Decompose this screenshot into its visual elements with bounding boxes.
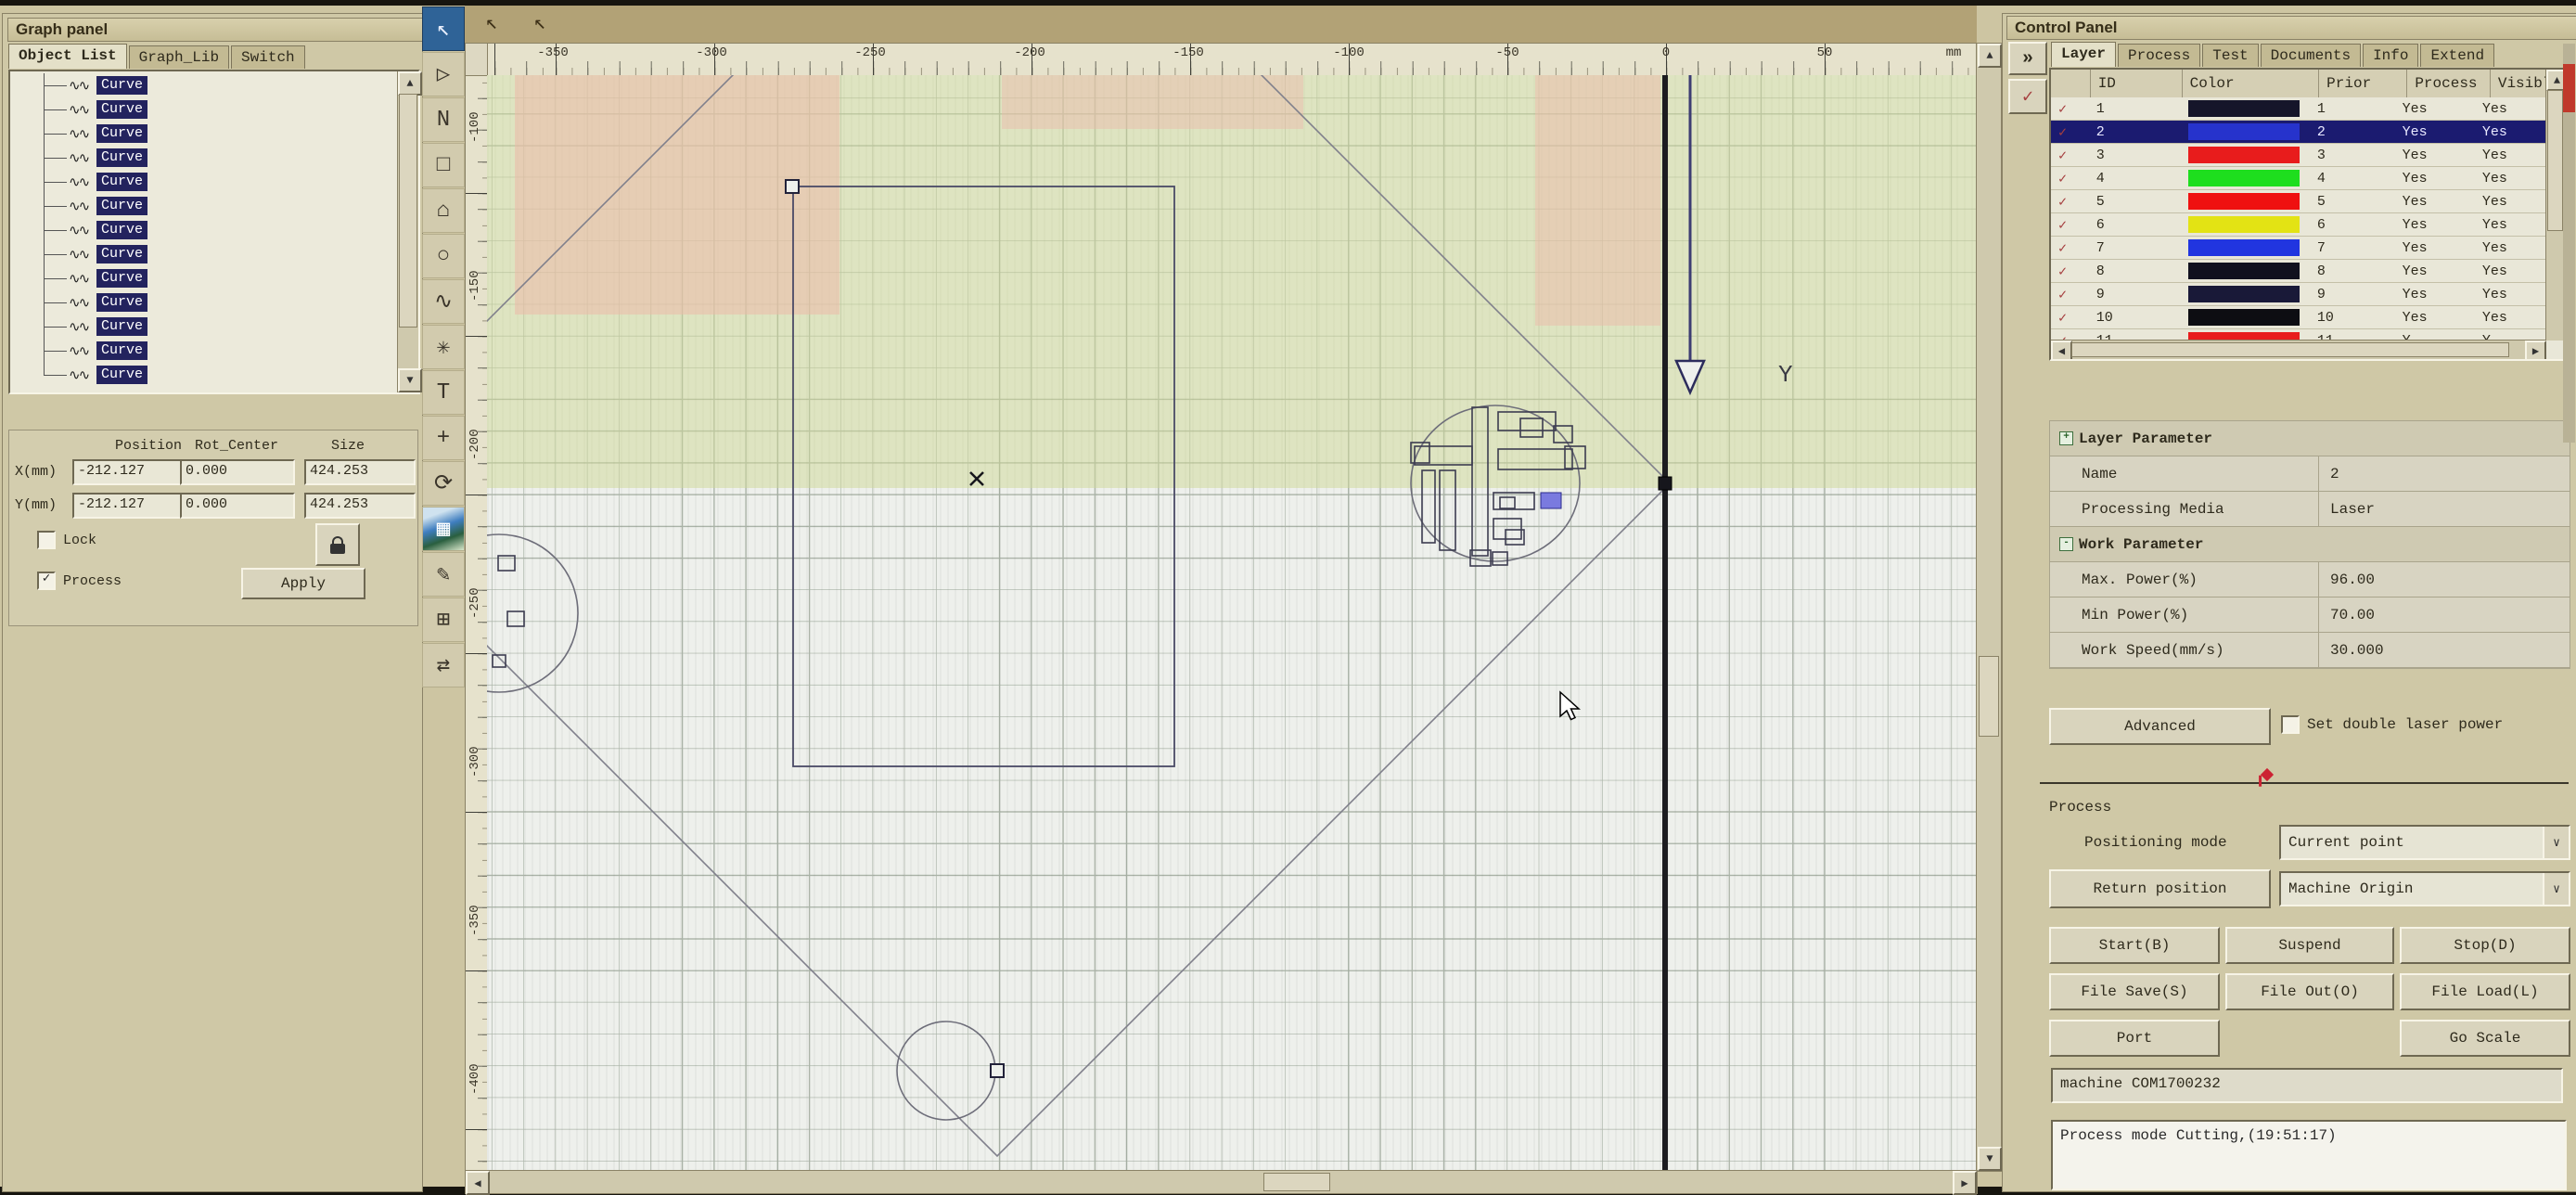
layer-process[interactable]: Yes <box>2395 124 2475 140</box>
canvas-vertical-scrollbar[interactable]: ▲ ▼ <box>1976 43 2002 1172</box>
param-row: Work Speed(mm/s)30.000 <box>2050 633 2570 668</box>
process-checkbox[interactable]: ✓ <box>37 572 56 590</box>
layer-visible[interactable]: Yes <box>2475 240 2546 256</box>
tree-branch <box>44 315 69 339</box>
select-all-layers-button[interactable]: ✓ <box>2008 79 2047 114</box>
layer-table-hscroll[interactable]: ◀ ▶ <box>2051 340 2546 359</box>
ruler-label: -250 <box>854 45 886 60</box>
layer-color-cell[interactable] <box>2177 216 2310 233</box>
layer-color-swatch <box>2188 193 2300 210</box>
layer-prior: 6 <box>2310 217 2395 233</box>
mouse-cursor-icon <box>1560 692 1579 720</box>
selection-handle <box>1659 477 1672 490</box>
spline-icon[interactable]: ∿ <box>422 279 465 324</box>
graph-panel-title: Graph panel <box>7 18 430 42</box>
object-item-label: Curve <box>96 245 147 263</box>
ruler-label: -150 <box>1173 45 1204 60</box>
object-list-box: ∿∿Curve∿∿Curve∿∿Curve∿∿Curve∿∿Curve∿∿Cur… <box>8 70 420 394</box>
ruler-label: 50 <box>1817 45 1833 60</box>
object-list-item[interactable]: ∿∿Curve <box>12 73 396 97</box>
layer-check-icon[interactable]: ✓ <box>2051 100 2089 118</box>
canvas-drawing: Y <box>487 75 1976 1170</box>
layer-process[interactable]: Yes <box>2395 101 2475 117</box>
file-out-o--button[interactable]: File Out(O) <box>2225 973 2394 1010</box>
lock-label: Lock <box>63 533 96 548</box>
layer-prior: 5 <box>2310 194 2395 210</box>
curve-icon: ∿∿ <box>69 270 96 288</box>
layer-row[interactable]: ✓11YesYes <box>2051 97 2546 121</box>
y-rot-center-field[interactable]: 0.000 <box>180 493 295 519</box>
object-list-item[interactable]: ∿∿Curve <box>12 290 396 315</box>
layer-process[interactable]: Yes <box>2395 240 2475 256</box>
param-section-work-parameter[interactable]: -Work Parameter <box>2050 527 2570 562</box>
object-item-label: Curve <box>96 366 147 384</box>
control-panel-title: Control Panel <box>2006 16 2576 40</box>
part-detail-rect <box>1554 426 1572 443</box>
ruler-label: 0 <box>1662 45 1670 60</box>
layer-row[interactable]: ✓66YesYes <box>2051 213 2546 237</box>
double-laser-checkbox[interactable] <box>2281 715 2300 734</box>
layer-id: 6 <box>2089 217 2177 233</box>
object-list-item[interactable]: ∿∿Curve <box>12 242 396 266</box>
layer-visible[interactable]: Yes <box>2475 217 2546 233</box>
layer-process[interactable]: Yes <box>2395 287 2475 302</box>
column-header-process[interactable]: Process <box>2407 70 2491 97</box>
scroll-up-icon[interactable]: ▲ <box>398 71 422 96</box>
rotate-icon[interactable]: ⟳ <box>422 461 465 506</box>
layer-parameter-grid: +Layer ParameterName2Processing MediaLas… <box>2049 420 2570 669</box>
layer-visible[interactable]: Yes <box>2475 171 2546 186</box>
positioning-mode-label: Positioning mode <box>2084 834 2227 851</box>
layer-table-header: IDColorPriorProcessVisible <box>2051 70 2565 98</box>
control-panel-tabs: LayerProcessTestDocumentsInfoExtend <box>2051 42 2570 67</box>
rectangle-icon[interactable]: □ <box>422 143 465 187</box>
tree-branch <box>44 242 69 266</box>
part-detail-rect <box>498 556 515 571</box>
size-column-header: Size <box>306 438 390 454</box>
layer-color-cell[interactable] <box>2177 263 2310 279</box>
layer-visible[interactable]: Yes <box>2475 263 2546 279</box>
advanced-button[interactable]: Advanced <box>2049 708 2271 745</box>
ruler-corner <box>465 43 489 77</box>
layer-process[interactable]: Yes <box>2395 310 2475 326</box>
ruler-label: -200 <box>468 429 482 460</box>
polygon-icon[interactable]: ⌂ <box>422 188 465 233</box>
layer-color-swatch <box>2188 147 2300 163</box>
horizontal-ruler: mm -350-300-250-200-150-100-50050 <box>487 43 1978 77</box>
curve-icon: ∿∿ <box>69 125 96 143</box>
ruler-label: -50 <box>1495 45 1519 60</box>
header-check-spacer <box>2051 70 2091 97</box>
layer-process[interactable]: Yes <box>2395 217 2475 233</box>
part-detail-rect <box>1440 470 1455 550</box>
tree-branch <box>44 290 69 315</box>
layer-row[interactable]: ✓1010YesYes <box>2051 306 2546 329</box>
param-label: Min Power(%) <box>2050 597 2319 632</box>
part-detail-rect <box>1498 449 1572 469</box>
object-list-item[interactable]: ∿∿Curve <box>12 218 396 242</box>
column-header-color[interactable]: Color <box>2183 70 2320 97</box>
layer-row[interactable]: ✓55YesYes <box>2051 190 2546 213</box>
control-tab-test[interactable]: Test <box>2202 44 2258 67</box>
panel-divider <box>2040 782 2569 784</box>
process-label: Process <box>63 573 122 589</box>
tree-branch <box>44 339 69 363</box>
control-tab-documents[interactable]: Documents <box>2261 44 2361 67</box>
layer-row[interactable]: ✓33YesYes <box>2051 144 2546 167</box>
object-item-label: Curve <box>96 100 147 119</box>
part-detail-rect <box>1500 497 1515 508</box>
process-group-label: Process <box>2049 799 2111 816</box>
ruler-label: -300 <box>696 45 727 60</box>
layer-color-cell[interactable] <box>2177 193 2310 210</box>
tree-branch <box>44 73 69 97</box>
control-panel: Control Panel » ✓ LayerProcessTestDocume… <box>2002 13 2576 1192</box>
tree-branch <box>44 218 69 242</box>
curve-icon: ∿∿ <box>69 246 96 263</box>
param-section-label: Layer Parameter <box>2079 430 2212 447</box>
panel-edge-strip <box>2563 44 2575 443</box>
scroll-left-icon[interactable]: ◀ <box>2051 341 2072 361</box>
top-toolbar: ↖↖ <box>465 6 1977 44</box>
param-label: Max. Power(%) <box>2050 562 2319 597</box>
param-value[interactable]: Laser <box>2319 501 2375 518</box>
layer-table: IDColorPriorProcessVisible ✓11YesYes✓22Y… <box>2049 68 2567 361</box>
object-item-label: Curve <box>96 221 147 239</box>
layer-color-cell[interactable] <box>2177 309 2310 326</box>
part-detail-rect <box>1415 446 1472 465</box>
scroll-right-icon[interactable]: ▶ <box>1953 1171 1977 1195</box>
go-scale-button[interactable]: Go Scale <box>2400 1020 2570 1057</box>
layer-check-icon[interactable]: ✓ <box>2051 309 2089 327</box>
layer-color-cell[interactable] <box>2177 170 2310 186</box>
object-item-label: Curve <box>96 148 147 167</box>
vertical-ruler: -100-150-200-250-300-350-400 <box>465 75 489 1172</box>
down-arrow-icon <box>1676 361 1704 392</box>
control-tab-info[interactable]: Info <box>2363 44 2418 67</box>
expand-panel-button[interactable]: » <box>2008 42 2047 75</box>
param-label: Work Speed(mm/s) <box>2050 633 2319 667</box>
pick-arrow-icon[interactable]: ▷ <box>422 52 465 96</box>
layer-color-cell[interactable] <box>2177 123 2310 140</box>
scroll-right-icon[interactable]: ▶ <box>2525 341 2546 361</box>
return-position-button[interactable]: Return position <box>2049 869 2271 908</box>
ruler-label: -350 <box>468 905 482 936</box>
return-position-value: Machine Origin <box>2281 880 2543 897</box>
part-detail-rect <box>1520 418 1543 437</box>
layer-row[interactable]: ✓22YesYes <box>2051 121 2546 144</box>
polyline-icon[interactable]: N <box>422 97 465 142</box>
lock-icon <box>330 544 345 554</box>
chevron-down-icon[interactable]: ∨ <box>2543 873 2569 905</box>
selection-handle <box>991 1064 1004 1077</box>
layer-prior: 3 <box>2310 148 2395 163</box>
curve-icon: ∿∿ <box>69 101 96 119</box>
cursor-icon-2[interactable]: ↖ <box>526 9 554 37</box>
layer-check-icon[interactable]: ✓ <box>2051 239 2089 257</box>
scroll-thumb[interactable] <box>1263 1173 1330 1191</box>
layer-id: 10 <box>2089 310 2177 326</box>
param-value[interactable]: 2 <box>2319 466 2339 482</box>
layer-check-icon[interactable]: ✓ <box>2051 263 2089 280</box>
control-tab-process[interactable]: Process <box>2118 44 2200 67</box>
layer-visible[interactable]: Yes <box>2475 194 2546 210</box>
rectangle-shape <box>793 186 1174 766</box>
chevron-down-icon[interactable]: ∨ <box>2543 827 2569 858</box>
scroll-thumb[interactable] <box>399 94 417 328</box>
param-row: Min Power(%)70.00 <box>2050 597 2570 633</box>
layer-id: 1 <box>2089 101 2177 117</box>
object-list-item[interactable]: ∿∿Curve <box>12 97 396 122</box>
layer-row[interactable]: ✓88YesYes <box>2051 260 2546 283</box>
diamond-shape <box>487 75 1670 1156</box>
image-icon[interactable]: ▦ <box>422 507 465 551</box>
layer-id: 8 <box>2089 263 2177 279</box>
layer-row[interactable]: ✓77YesYes <box>2051 237 2546 260</box>
param-section-label: Work Parameter <box>2079 536 2203 553</box>
ruler-label: -350 <box>537 45 569 60</box>
status-log-box: Process mode Cutting,(19:51:17) <box>2051 1120 2567 1190</box>
object-list-item[interactable]: ∿∿Curve <box>12 194 396 218</box>
param-row: Max. Power(%)96.00 <box>2050 562 2570 597</box>
object-item-label: Curve <box>96 197 147 215</box>
scroll-up-icon[interactable]: ▲ <box>1978 44 2002 68</box>
layer-process[interactable]: Yes <box>2395 171 2475 186</box>
layer-id: 7 <box>2089 240 2177 256</box>
param-value[interactable]: 30.000 <box>2319 642 2384 659</box>
sketch-icon[interactable]: ✳ <box>422 325 465 369</box>
tree-branch <box>44 266 69 290</box>
start-b--button[interactable]: Start(B) <box>2049 927 2220 964</box>
layer-check-icon[interactable]: ✓ <box>2051 123 2089 141</box>
edge-marker <box>2563 64 2575 112</box>
lock-icon-button[interactable] <box>315 523 360 566</box>
x-rot-center-field[interactable]: 0.000 <box>180 459 295 485</box>
curve-icon: ∿∿ <box>69 294 96 312</box>
object-list-item[interactable]: ∿∿Curve <box>12 146 396 170</box>
y-size-field[interactable]: 424.253 <box>304 493 416 519</box>
object-item-label: Curve <box>96 76 147 95</box>
tree-branch <box>44 122 69 146</box>
layer-prior: 7 <box>2310 240 2395 256</box>
scroll-thumb[interactable] <box>2071 342 2509 357</box>
stop-d--button[interactable]: Stop(D) <box>2400 927 2570 964</box>
param-row: Processing MediaLaser <box>2050 492 2570 527</box>
collapse-toggle-icon[interactable]: - <box>2059 537 2073 551</box>
layer-prior: 2 <box>2310 124 2395 140</box>
layer-id: 2 <box>2089 124 2177 140</box>
control-tab-extend[interactable]: Extend <box>2420 44 2494 67</box>
scroll-thumb[interactable] <box>1979 656 1999 737</box>
layer-id: 4 <box>2089 171 2177 186</box>
array-copy-icon[interactable]: ⊞ <box>422 597 465 642</box>
cursor-icon-1[interactable]: ↖ <box>478 9 506 37</box>
curve-icon: ∿∿ <box>69 318 96 336</box>
collapse-toggle-icon[interactable]: + <box>2059 431 2073 445</box>
layer-color-swatch <box>2188 263 2300 279</box>
curve-icon: ∿∿ <box>69 173 96 191</box>
file-load-l--button[interactable]: File Load(L) <box>2400 973 2570 1010</box>
drawing-canvas[interactable]: Y <box>487 75 1976 1170</box>
file-save-s--button[interactable]: File Save(S) <box>2049 973 2220 1010</box>
layer-color-cell[interactable] <box>2177 286 2310 302</box>
column-header-prior[interactable]: Prior <box>2319 70 2407 97</box>
scroll-down-icon[interactable]: ▼ <box>1978 1147 2002 1171</box>
object-item-label: Curve <box>96 341 147 360</box>
curve-icon: ∿∿ <box>69 366 96 384</box>
positioning-mode-select[interactable]: Current point ∨ <box>2279 825 2570 860</box>
machine-axis-line <box>1662 75 1668 1170</box>
ruler-label: -150 <box>468 270 482 302</box>
control-tab-layer[interactable]: Layer <box>2051 42 2116 67</box>
selection-handle <box>786 180 799 193</box>
part-detail-blue <box>1541 493 1561 508</box>
text-icon[interactable]: T <box>422 370 465 415</box>
layer-table-body: ✓11YesYes✓22YesYes✓33YesYes✓44YesYes✓55Y… <box>2051 97 2546 341</box>
double-laser-label: Set double laser power <box>2307 716 2503 733</box>
column-header-id[interactable]: ID <box>2091 70 2183 97</box>
param-label: Name <box>2050 456 2319 491</box>
scroll-thumb[interactable] <box>2547 90 2563 231</box>
layer-prior: 9 <box>2310 287 2395 302</box>
suspend-button[interactable]: Suspend <box>2225 927 2394 964</box>
layer-color-swatch <box>2188 286 2300 302</box>
lock-checkbox[interactable] <box>37 531 56 549</box>
layer-check-icon[interactable]: ✓ <box>2051 216 2089 234</box>
ruler-label: -200 <box>1014 45 1045 60</box>
layer-color-swatch <box>2188 216 2300 233</box>
layer-color-swatch <box>2188 239 2300 256</box>
object-list-item[interactable]: ∿∿Curve <box>12 339 396 363</box>
layer-color-swatch <box>2188 123 2300 140</box>
object-list-item[interactable]: ∿∿Curve <box>12 122 396 146</box>
ruler-label: -300 <box>468 746 482 777</box>
part-detail-rect <box>1493 552 1507 565</box>
layer-prior: 4 <box>2310 171 2395 186</box>
curve-icon: ∿∿ <box>69 198 96 215</box>
ellipse-icon[interactable]: ○ <box>422 234 465 278</box>
layer-color-swatch <box>2188 100 2300 117</box>
x-position-field[interactable]: -212.127 <box>72 459 187 485</box>
tree-branch <box>44 146 69 170</box>
apply-button[interactable]: Apply <box>241 568 365 599</box>
ruler-label: -100 <box>1333 45 1365 60</box>
scroll-left-icon[interactable]: ◀ <box>466 1171 490 1195</box>
mirror-icon[interactable]: ⇄ <box>422 643 465 687</box>
canvas-horizontal-scrollbar[interactable]: ◀ ▶ <box>465 1170 1978 1194</box>
object-list: ∿∿Curve∿∿Curve∿∿Curve∿∿Curve∿∿Curve∿∿Cur… <box>12 73 396 391</box>
part-detail-rect <box>1472 407 1488 556</box>
layer-color-cell[interactable] <box>2177 100 2310 117</box>
drawing-toolbar: ↖▷N□⌂○∿✳T+⟳▦✎⊞⇄ <box>422 6 465 688</box>
positioning-mode-value: Current point <box>2281 834 2543 851</box>
node-edit-icon[interactable]: ✎ <box>422 552 465 597</box>
position-panel: Position Rot_Center Size X(mm) -212.127 … <box>8 430 418 626</box>
ruler-label: -100 <box>468 111 482 143</box>
layer-process[interactable]: Yes <box>2395 263 2475 279</box>
layer-process[interactable]: Yes <box>2395 194 2475 210</box>
tree-branch <box>44 194 69 218</box>
return-position-select[interactable]: Machine Origin ∨ <box>2279 871 2570 906</box>
graph-panel: Graph panel Object ListGraph_LibSwitch ∿… <box>2 13 423 1192</box>
object-list-item[interactable]: ∿∿Curve <box>12 315 396 339</box>
y-row-label: Y(mm) <box>15 497 57 513</box>
tree-branch <box>44 363 69 376</box>
layer-process[interactable]: Yes <box>2395 148 2475 163</box>
layer-visible[interactable]: Yes <box>2475 310 2546 326</box>
object-item-label: Curve <box>96 173 147 191</box>
layer-check-icon[interactable]: ✓ <box>2051 170 2089 187</box>
tree-branch <box>44 97 69 122</box>
graph-panel-tabs: Object ListGraph_LibSwitch <box>8 44 417 69</box>
machine-port-field[interactable]: machine COM1700232 <box>2051 1068 2563 1103</box>
object-list-scrollbar[interactable]: ▲ ▼ <box>397 71 418 392</box>
tree-branch <box>44 170 69 194</box>
layer-prior: 10 <box>2310 310 2395 326</box>
layer-visible[interactable]: Yes <box>2475 124 2546 140</box>
object-item-label: Curve <box>96 317 147 336</box>
object-item-label: Curve <box>96 293 147 312</box>
part-detail-rect <box>1493 519 1521 539</box>
layer-check-icon[interactable]: ✓ <box>2051 286 2089 303</box>
ruler-label: -400 <box>468 1063 482 1095</box>
layer-color-swatch <box>2188 170 2300 186</box>
object-item-label: Curve <box>96 124 147 143</box>
param-row: Name2 <box>2050 456 2570 492</box>
graph-tab-object-list[interactable]: Object List <box>8 44 127 69</box>
layer-row[interactable]: ✓44YesYes <box>2051 167 2546 190</box>
curve-icon: ∿∿ <box>69 149 96 167</box>
curve-icon: ∿∿ <box>69 222 96 239</box>
graph-tab-graph-lib[interactable]: Graph_Lib <box>129 45 229 69</box>
param-value[interactable]: 96.00 <box>2319 572 2375 588</box>
layer-prior: 1 <box>2310 101 2395 117</box>
object-item-label: Curve <box>96 269 147 288</box>
layer-color-cell[interactable] <box>2177 239 2310 256</box>
layer-color-cell[interactable] <box>2177 147 2310 163</box>
ruler-unit-label: mm <box>1946 45 1962 60</box>
layer-check-icon[interactable]: ✓ <box>2051 147 2089 164</box>
rot-center-column-header: Rot_Center <box>172 438 301 454</box>
scroll-down-icon[interactable]: ▼ <box>398 368 422 392</box>
part-circle-left <box>487 534 578 692</box>
layer-visible[interactable]: Yes <box>2475 148 2546 163</box>
port-button[interactable]: Port <box>2049 1020 2220 1057</box>
object-list-item[interactable]: ∿∿Curve <box>12 170 396 194</box>
layer-check-icon[interactable]: ✓ <box>2051 193 2089 211</box>
param-label: Processing Media <box>2050 492 2319 526</box>
center-x-marker <box>970 472 983 485</box>
y-position-field[interactable]: -212.127 <box>72 493 187 519</box>
move-icon[interactable]: + <box>422 416 465 460</box>
y-axis-label: Y <box>1778 361 1793 389</box>
curve-icon: ∿∿ <box>69 77 96 95</box>
status-log-text: Process mode Cutting,(19:51:17) <box>2053 1122 2565 1150</box>
ruler-label: -250 <box>468 587 482 619</box>
param-section-layer-parameter[interactable]: +Layer Parameter <box>2050 421 2570 456</box>
part-detail-rect <box>507 611 524 626</box>
object-list-item[interactable]: ∿∿Curve <box>12 266 396 290</box>
x-size-field[interactable]: 424.253 <box>304 459 416 485</box>
layer-visible[interactable]: Yes <box>2475 287 2546 302</box>
graph-tab-switch[interactable]: Switch <box>231 45 305 69</box>
select-icon[interactable]: ↖ <box>422 6 465 51</box>
param-value[interactable]: 70.00 <box>2319 607 2375 623</box>
object-list-item[interactable]: ∿∿Curve <box>12 363 396 387</box>
layer-visible[interactable]: Yes <box>2475 101 2546 117</box>
layer-table-vscroll[interactable]: ▲ <box>2545 70 2565 341</box>
layer-row[interactable]: ✓99YesYes <box>2051 283 2546 306</box>
